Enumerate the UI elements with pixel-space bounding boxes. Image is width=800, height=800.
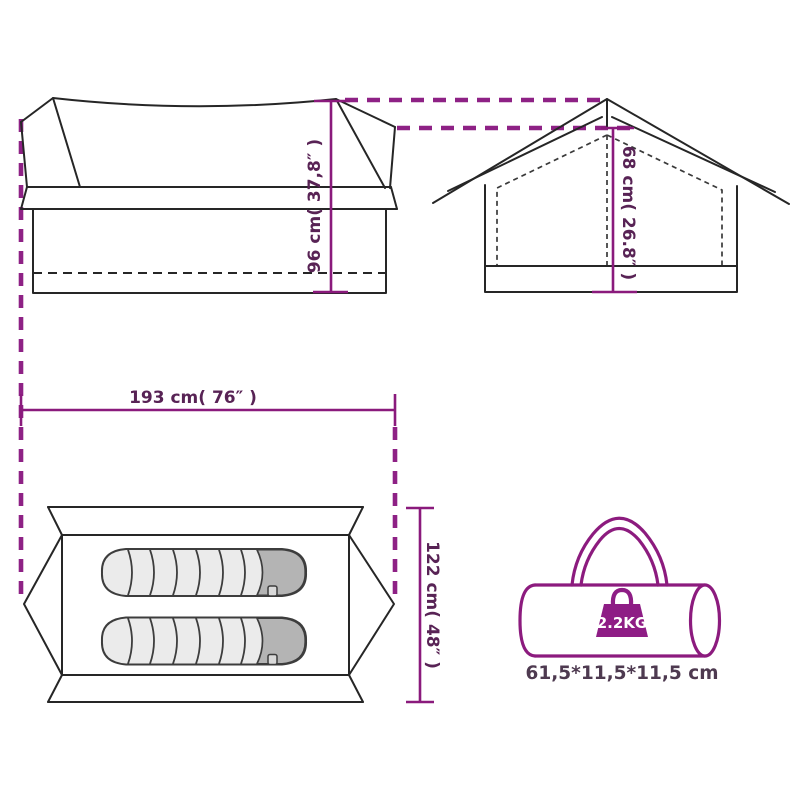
side-view: 96 cm( 37,8″ ) xyxy=(21,98,397,293)
length-measurement: 193 cm( 76″ ) xyxy=(21,388,395,426)
front-walls xyxy=(485,185,737,292)
top-view: 122 cm( 48″ ) xyxy=(24,507,442,702)
bag-left-cap xyxy=(520,585,535,656)
side-wall xyxy=(33,209,386,293)
bag-right-end xyxy=(691,585,720,656)
front-roof-outer xyxy=(433,99,789,204)
packed-size-label: 61,5*11,5*11,5 cm xyxy=(526,663,719,684)
projection-lines xyxy=(21,100,633,600)
carry-bag: 2.2KG 61,5*11,5*11,5 cm xyxy=(520,518,720,684)
sleeping-bag-2 xyxy=(102,618,306,665)
length-193-label: 193 cm( 76″ ) xyxy=(129,388,257,408)
right-door-flap xyxy=(349,535,394,675)
width-122-label: 122 cm( 48″ ) xyxy=(422,541,442,669)
tent-dimensions-diagram: 96 cm( 37,8″ ) 68 cm( 26.8″ ) 193 cm( 76… xyxy=(0,0,800,800)
weight-icon-handle xyxy=(613,590,631,605)
diagram-canvas: 96 cm( 37,8″ ) 68 cm( 26.8″ ) 193 cm( 76… xyxy=(0,0,800,800)
weight-label: 2.2KG xyxy=(597,614,648,632)
sleeping-bag-1 xyxy=(102,549,306,596)
left-door-flap xyxy=(24,535,62,675)
height-68-label: 68 cm( 26.8″ ) xyxy=(618,146,638,280)
height-96-label: 96 cm( 37,8″ ) xyxy=(305,139,325,273)
